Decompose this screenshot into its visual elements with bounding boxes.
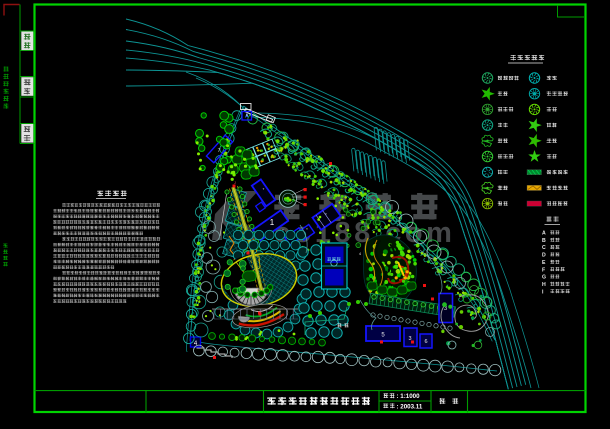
- svg-text:D: D: [542, 253, 546, 259]
- svg-text:G: G: [542, 275, 546, 281]
- svg-text:*: *: [325, 212, 327, 217]
- svg-text:: 2003.11: : 2003.11: [397, 403, 423, 410]
- svg-text:J: J: [234, 181, 236, 185]
- svg-text:E: E: [542, 260, 546, 266]
- svg-text:6: 6: [424, 339, 427, 345]
- svg-text:*: *: [263, 187, 265, 192]
- svg-text:: 1:1000: : 1:1000: [397, 393, 421, 400]
- svg-text:1: 1: [270, 218, 275, 227]
- svg-text:H: H: [542, 282, 546, 288]
- svg-text:C: C: [542, 245, 546, 251]
- svg-text:*: *: [306, 227, 308, 232]
- svg-text:B: B: [542, 238, 546, 244]
- svg-text:7: 7: [218, 148, 221, 154]
- svg-text:A: A: [542, 231, 546, 237]
- svg-text:F: F: [542, 267, 545, 273]
